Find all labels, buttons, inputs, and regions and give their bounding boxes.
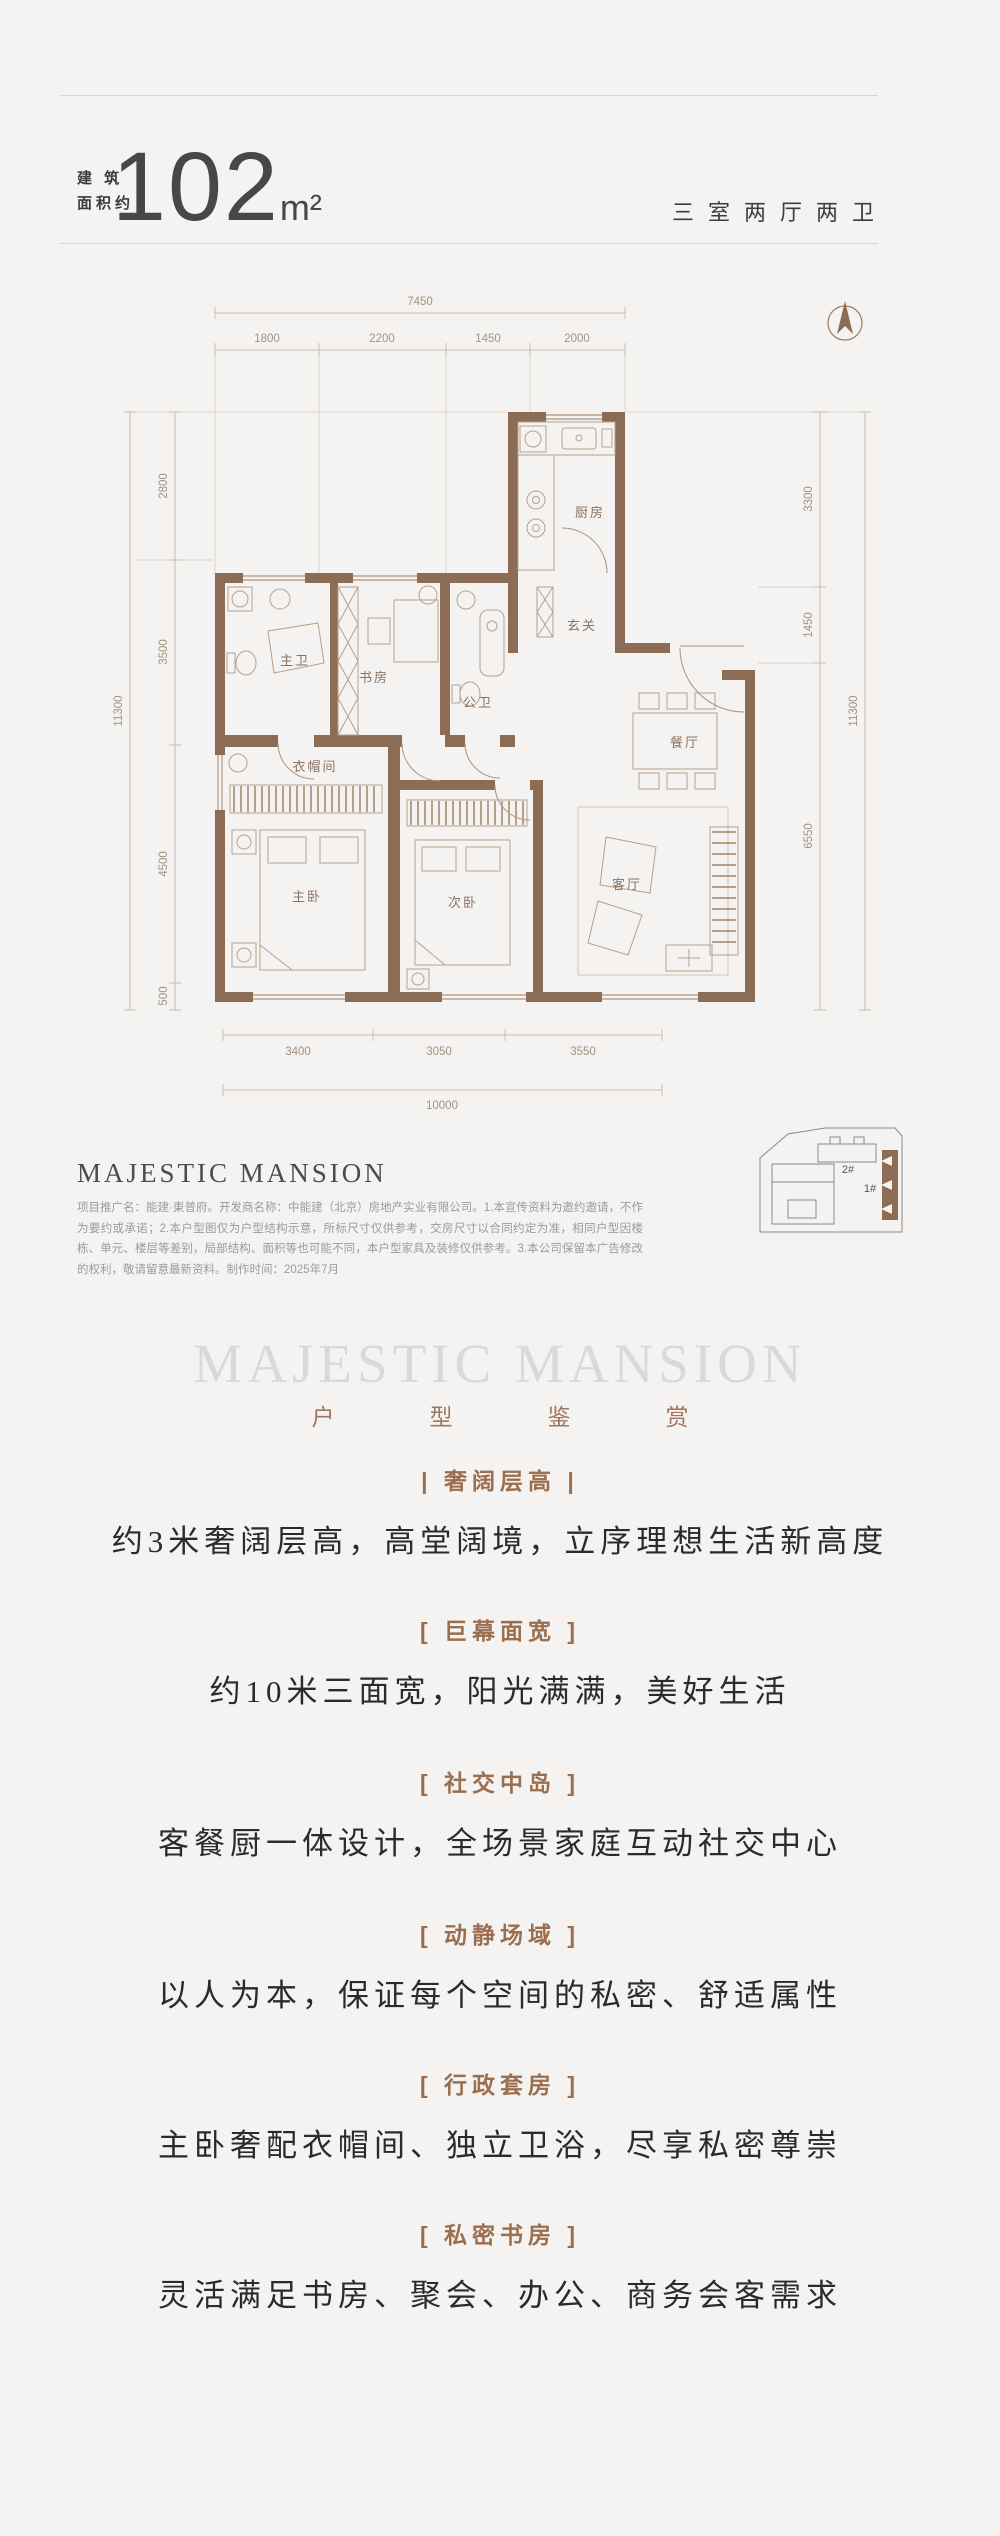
feature-tag: [ 巨幕面宽 ] (0, 1612, 1000, 1646)
windows (215, 412, 698, 1002)
dim-bottom-2: 3050 (426, 1046, 452, 1058)
dim-left-total2: 11300 (113, 695, 125, 726)
feature-desc: 约10米三面宽，阳光满满，美好生活 (0, 1666, 1000, 1711)
dim-right-1: 3300 (803, 486, 815, 512)
area-value: 102m² (112, 142, 322, 253)
dim-right: 3300 1450 6550 11300 (803, 412, 871, 1010)
dim-top-1: 1800 (254, 333, 280, 345)
dim-bottom: 3400 3050 3550 10000 (223, 1029, 662, 1112)
room-label-cloakroom: 衣帽间 (292, 759, 337, 774)
feature-section-2: [ 巨幕面宽 ] 约10米三面宽，阳光满满，美好生活 (0, 1612, 1000, 1711)
disclaimer-text: 项目推广名：能建·東普府。开发商名称：中能建（北京）房地产实业有限公司。1.本宣… (77, 1198, 643, 1281)
dim-right-3: 6550 (803, 823, 815, 849)
watermark-subtitle: 户型鉴赏 (0, 1398, 1000, 1432)
dim-left-1: 2800 (158, 473, 170, 499)
layout-type: 三室两厅两卫 (672, 195, 888, 227)
brand-name: MAJESTIC MANSION (77, 1158, 387, 1189)
dim-left-2: 3500 (158, 639, 170, 665)
area-number: 102 (112, 132, 280, 241)
area-unit: m² (280, 187, 322, 228)
site-map: 2# 1# (750, 1120, 920, 1240)
dim-top: 7450 1800 2200 1450 2000 (215, 296, 625, 357)
feature-tag: [ 行政套房 ] (0, 2066, 1000, 2100)
feature-section-3: [ 社交中岛 ] 客餐厨一体设计，全场景家庭互动社交中心 (0, 1764, 1000, 1863)
feature-section-5: [ 行政套房 ] 主卧奢配衣帽间、独立卫浴，尽享私密尊崇 (0, 2066, 1000, 2165)
room-label-second-bedroom: 次卧 (448, 895, 478, 910)
header-divider (60, 243, 878, 244)
top-divider (60, 95, 878, 96)
room-label-living: 客厅 (612, 877, 642, 892)
dim-bottom-3: 3550 (570, 1046, 596, 1058)
feature-tag: [ 社交中岛 ] (0, 1764, 1000, 1798)
room-label-guest-bath: 公卫 (463, 695, 493, 710)
floor-plan: 7450 1800 2200 1450 2000 11300 2800 (110, 285, 910, 1115)
dim-left-3: 4500 (158, 851, 170, 877)
dim-top-2: 2200 (369, 333, 395, 345)
feature-tag: | 奢阔层高 | (0, 1462, 1000, 1496)
dim-extension-lines (136, 357, 860, 663)
floor-plan-svg: 7450 1800 2200 1450 2000 11300 2800 (110, 285, 910, 1115)
feature-desc: 客餐厨一体设计，全场景家庭互动社交中心 (0, 1818, 1000, 1863)
site-building-2: 2# (818, 1137, 876, 1176)
feature-section-4: [ 动静场域 ] 以人为本，保证每个空间的私密、舒适属性 (0, 1916, 1000, 2015)
feature-tag: [ 私密书房 ] (0, 2216, 1000, 2250)
dim-bottom-1: 3400 (285, 1046, 311, 1058)
feature-section-1: | 奢阔层高 | 约3米奢阔层高，高堂阔境，立序理想生活新高度 (0, 1462, 1000, 1561)
room-label-dining: 餐厅 (670, 735, 700, 750)
room-label-master-bath: 主卫 (280, 653, 310, 668)
feature-section-6: [ 私密书房 ] 灵活满足书房、聚会、办公、商务会客需求 (0, 2216, 1000, 2315)
room-label-master-bedroom: 主卧 (292, 889, 322, 904)
compass-icon (828, 301, 862, 340)
dim-top-total: 7450 (407, 296, 433, 308)
watermark-title: MAJESTIC MANSION (0, 1332, 1000, 1395)
site-building-1: 1# (864, 1150, 898, 1220)
feature-desc: 灵活满足书房、聚会、办公、商务会客需求 (0, 2270, 1000, 2315)
feature-tag: [ 动静场域 ] (0, 1916, 1000, 1950)
dim-left-4: 500 (158, 986, 170, 1005)
dim-right-total: 11300 (848, 695, 860, 726)
feature-desc: 主卧奢配衣帽间、独立卫浴，尽享私密尊崇 (0, 2120, 1000, 2165)
room-label-entry: 玄关 (567, 618, 597, 633)
site-building-1-label: 1# (864, 1183, 877, 1195)
site-building-2-label: 2# (842, 1164, 855, 1176)
feature-desc: 以人为本，保证每个空间的私密、舒适属性 (0, 1970, 1000, 2015)
dim-top-3: 1450 (475, 333, 501, 345)
site-map-svg: 2# 1# (750, 1120, 920, 1240)
room-label-study: 书房 (359, 670, 389, 685)
dim-left: 11300 2800 3500 4500 500 (113, 412, 181, 1010)
feature-desc: 约3米奢阔层高，高堂阔境，立序理想生活新高度 (0, 1516, 1000, 1561)
dim-right-2: 1450 (803, 612, 815, 638)
dim-bottom-total: 10000 (426, 1100, 458, 1112)
room-label-kitchen: 厨房 (575, 505, 605, 520)
dim-top-4: 2000 (564, 333, 590, 345)
floorplan-marketing-page: 建 筑 面积约 102m² 三室两厅两卫 (0, 0, 1000, 2536)
